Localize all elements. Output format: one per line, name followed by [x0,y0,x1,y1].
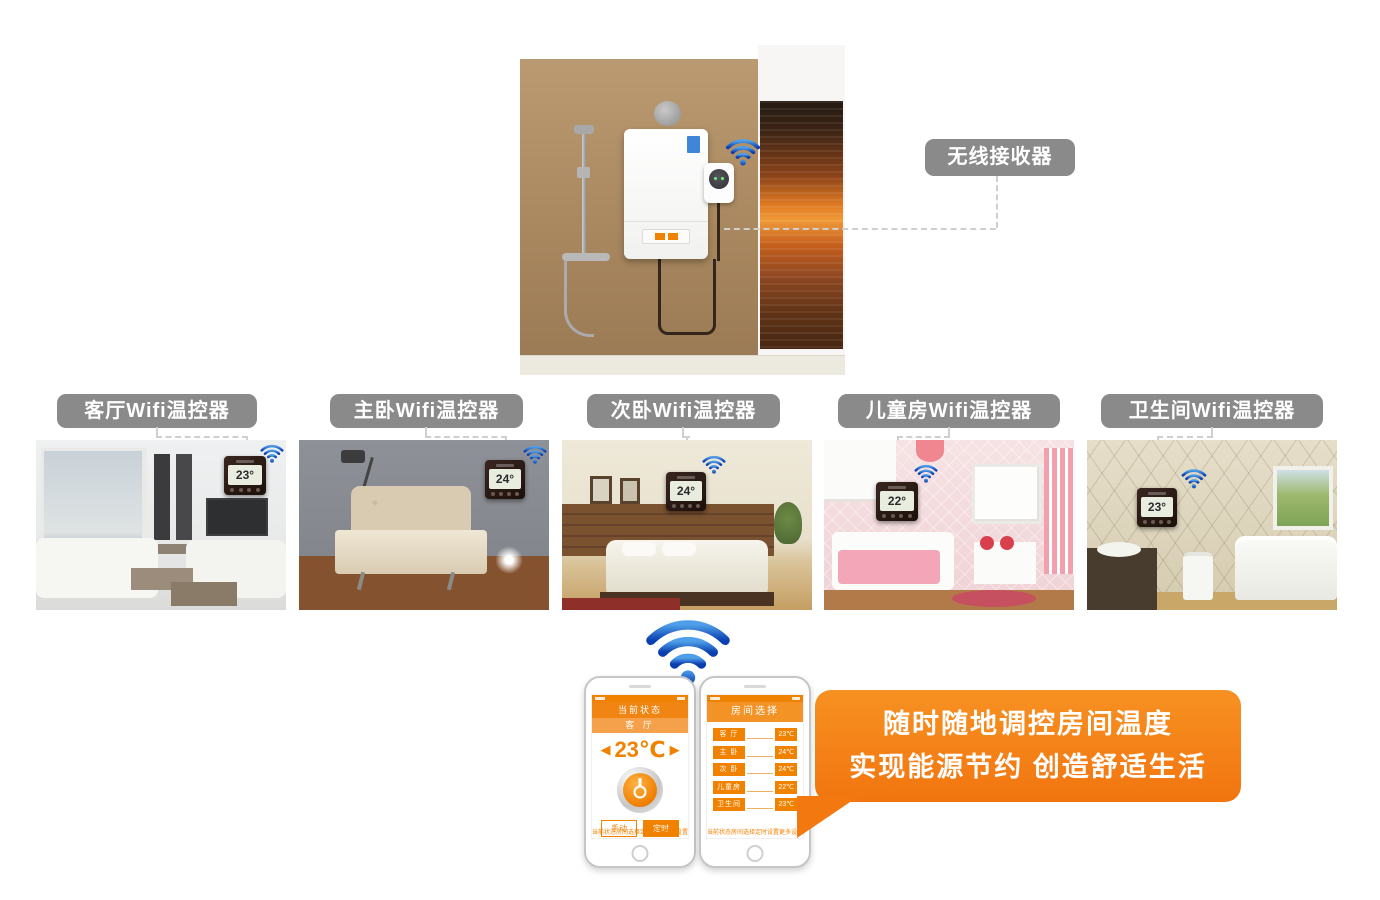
speaker [154,454,170,540]
home-button [632,845,649,862]
room-name: 卫生间 [713,798,745,811]
boiler-vent [654,101,681,126]
picture-frame [590,476,612,504]
wall-shelf [972,464,1042,524]
window [1273,466,1333,530]
wall-boiler [624,129,708,259]
power-button [617,767,663,813]
shower-hose [564,261,594,337]
tag-label: 客厅Wifi温控器 [84,400,229,422]
wifi-signal-icon [258,442,286,463]
nav-item: 定时设置 [640,827,664,836]
decrease-arrow-icon: ◀ [600,742,610,758]
speech-bubble-tail [797,796,859,838]
connector-line [1157,436,1213,438]
room-row: 主 卧 24℃ [713,746,797,759]
tag-kids-room: 儿童房Wifi温控器 [838,394,1060,428]
room-temp: 23℃ [775,728,797,741]
nav-item: 当前状态 [592,827,616,836]
connector-line [156,427,158,436]
nav-item: 当前状态 [707,827,731,836]
power-icon [623,773,657,807]
sink [1097,542,1141,557]
coffee-table [171,582,237,606]
room-list: 客 厅 23℃ 主 卧 24℃ 次 卧 24℃ 儿童房 22℃ [707,722,803,811]
wifi-signal-icon-large [636,610,740,686]
temperature-selector: ◀ 23℃ ▶ [592,733,688,767]
speaker [176,454,192,540]
room-row: 次 卧 24℃ [713,763,797,776]
rug [562,598,680,610]
home-button [747,845,764,862]
energy-label [687,136,700,153]
phone-speaker [629,685,651,688]
thermostat: 24° [485,460,525,499]
shower-head [574,125,594,134]
connector-line [724,228,996,230]
room-temp: 22℃ [775,781,797,794]
room-temp: 24℃ [775,746,797,759]
tag-second-bedroom: 次卧Wifi温控器 [587,394,780,428]
thermostat: 24° [666,472,706,511]
wireless-receiver-device [704,163,734,203]
room-row: 卫生间 23℃ [713,798,797,811]
thermostat-temp: 23° [1148,500,1166,514]
boiler-seam [624,221,708,222]
app-header: 当前状态 [592,702,688,718]
connector-line [948,427,950,436]
nav-item: 定时设置 [755,827,779,836]
current-temperature: 23℃ [614,737,665,763]
room-name-bar: 客 厅 [592,718,688,733]
receiver-tag-label: 无线接收器 [948,146,1053,168]
vanity [1087,548,1157,610]
thermostat-temp: 22° [888,494,906,508]
shower-valve [562,253,610,261]
bottom-nav: 当前状态 房间选择 定时设置 更多设置 [592,827,688,836]
sunset-picture [760,101,843,349]
thermostat-temp: 24° [677,484,695,498]
shower-rod [582,133,586,259]
smartphone-room-select-screen: 房间选择 客 厅 23℃ 主 卧 24℃ 次 卧 24℃ [699,676,811,868]
app-header: 房间选择 [707,702,803,722]
room-row: 客 厅 23℃ [713,728,797,741]
wifi-signal-icon [1179,466,1209,489]
promo-line-2: 实现能源节约 创造舒适生活 [815,746,1241,789]
receiver-tag: 无线接收器 [925,139,1075,176]
thermostat-temp: 24° [496,472,514,486]
tag-bathroom: 卫生间Wifi温控器 [1101,394,1323,428]
tag-label: 次卧Wifi温控器 [611,400,756,422]
increase-arrow-icon: ▶ [670,742,680,758]
room-name: 主 卧 [713,746,745,759]
wifi-signal-icon [722,135,764,166]
bathtub [1235,536,1337,600]
ceiling-lamp [916,440,944,462]
tag-label: 儿童房Wifi温控器 [866,400,1032,422]
chair [980,536,994,550]
thermostat: 23° [1137,488,1177,527]
promo-line-1: 随时随地调控房间温度 [815,703,1241,746]
tag-living-room: 客厅Wifi温控器 [57,394,257,428]
bed [335,530,487,574]
pillow [622,542,656,556]
boiler-cable [658,259,716,335]
connector-line [682,427,684,436]
nav-item: 房间选择 [616,827,640,836]
tag-label: 主卧Wifi温控器 [354,400,499,422]
thermostat: 22° [876,482,918,521]
boiler-scene-photo [520,45,845,375]
room-photo-living-room: 23° [36,440,286,610]
status-bar [592,695,688,702]
wifi-signal-icon [912,462,940,483]
thermostat-temp: 23° [236,468,254,482]
nav-item: 更多设置 [664,827,688,836]
room-temp: 23℃ [775,798,797,811]
wifi-signal-icon [521,443,549,464]
room-name: 儿童房 [713,781,745,794]
phone-speaker [744,685,766,688]
shower-slider [577,167,590,178]
toilet [1183,552,1213,600]
connector-line [1211,427,1213,436]
room-temp: 24℃ [775,763,797,776]
room-name: 客 厅 [713,728,745,741]
connector-line [897,436,950,438]
receiver-cable [717,203,720,261]
status-bar [707,695,803,702]
floor [520,355,845,375]
connector-line [996,176,998,228]
chair [1000,536,1014,550]
receiver-face [709,169,729,189]
app-screen-room-select: 房间选择 客 厅 23℃ 主 卧 24℃ 次 卧 24℃ [706,694,804,839]
curtain [1044,448,1074,574]
tag-master-bedroom: 主卧Wifi温控器 [330,394,523,428]
connector-line [425,436,507,438]
pink-blanket [838,550,940,584]
connector-line [156,436,248,438]
room-photo-second-bedroom: 24° [562,440,812,610]
room-name: 次 卧 [713,763,745,776]
plant [774,502,802,544]
app-screen-status: 当前状态 客 厅 ◀ 23℃ ▶ 手动 定时 当前状态 房间选择 定时设置 更多… [591,694,689,839]
wifi-signal-icon [700,453,728,474]
picture-frame [620,478,640,504]
tag-label: 卫生间Wifi温控器 [1129,400,1295,422]
floor-lamp-head [341,450,365,463]
room-photo-bathroom: 23° [1087,440,1337,610]
round-rug [952,590,1036,607]
connector-line [425,427,427,436]
infographic-canvas: 无线接收器 客厅Wifi温控器 主卧Wifi温控器 次卧Wifi温控器 儿童房W… [0,0,1380,900]
lamp-glow [495,546,523,574]
room-photo-master-bedroom: 24° [299,440,549,610]
nav-item: 房间选择 [731,827,755,836]
room-row: 儿童房 22℃ [713,781,797,794]
room-photo-kids-room: 22° [824,440,1074,610]
boiler-display [642,229,690,244]
tv-screen [206,498,268,536]
smartphone-status-screen: 当前状态 客 厅 ◀ 23℃ ▶ 手动 定时 当前状态 房间选择 定时设置 更多… [584,676,696,868]
promo-speech-bubble: 随时随地调控房间温度 实现能源节约 创造舒适生活 [815,690,1241,802]
pillow [662,542,696,556]
bottom-nav: 当前状态 房间选择 定时设置 更多设置 [707,827,803,836]
